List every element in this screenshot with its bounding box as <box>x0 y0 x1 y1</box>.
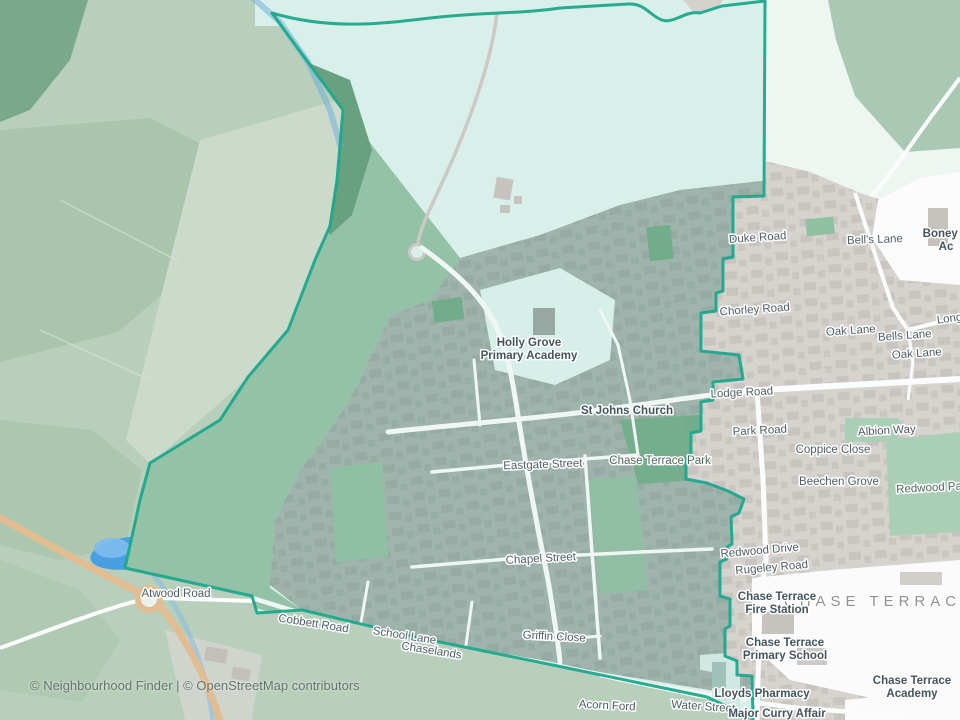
label-acorn-ford: Acorn Ford <box>578 699 635 714</box>
label-major-curry-affair: Major Curry Affair <box>728 708 826 720</box>
label-st-johns-church: St Johns Church <box>581 405 673 417</box>
label-atwood-road: Atwood Road <box>141 588 210 600</box>
map-canvas[interactable]: Atwood RoadCobbett RoadSchool LaneChasel… <box>0 0 960 720</box>
label-lloyds-pharmacy: Lloyds Pharmacy <box>714 688 810 700</box>
school-building <box>533 308 555 335</box>
pond-highlight <box>94 538 130 558</box>
attribution: © Neighbourhood Finder | © OpenStreetMap… <box>30 678 360 693</box>
map-viewport[interactable]: Atwood RoadCobbett RoadSchool LaneChasel… <box>0 0 960 720</box>
label-chase-terrace-fire-station: Chase TerraceFire Station <box>738 591 816 616</box>
label-chase-terrace-park: Chase Terrace Park <box>609 455 711 467</box>
label-beechen-grove: Beechen Grove <box>799 476 879 488</box>
label-bell-s-lane: Bell's Lane <box>847 233 903 247</box>
label-coppice-close: Coppice Close <box>796 444 871 456</box>
label-chase-terrace-primary-school: Chase TerracePrimary School <box>743 637 827 662</box>
